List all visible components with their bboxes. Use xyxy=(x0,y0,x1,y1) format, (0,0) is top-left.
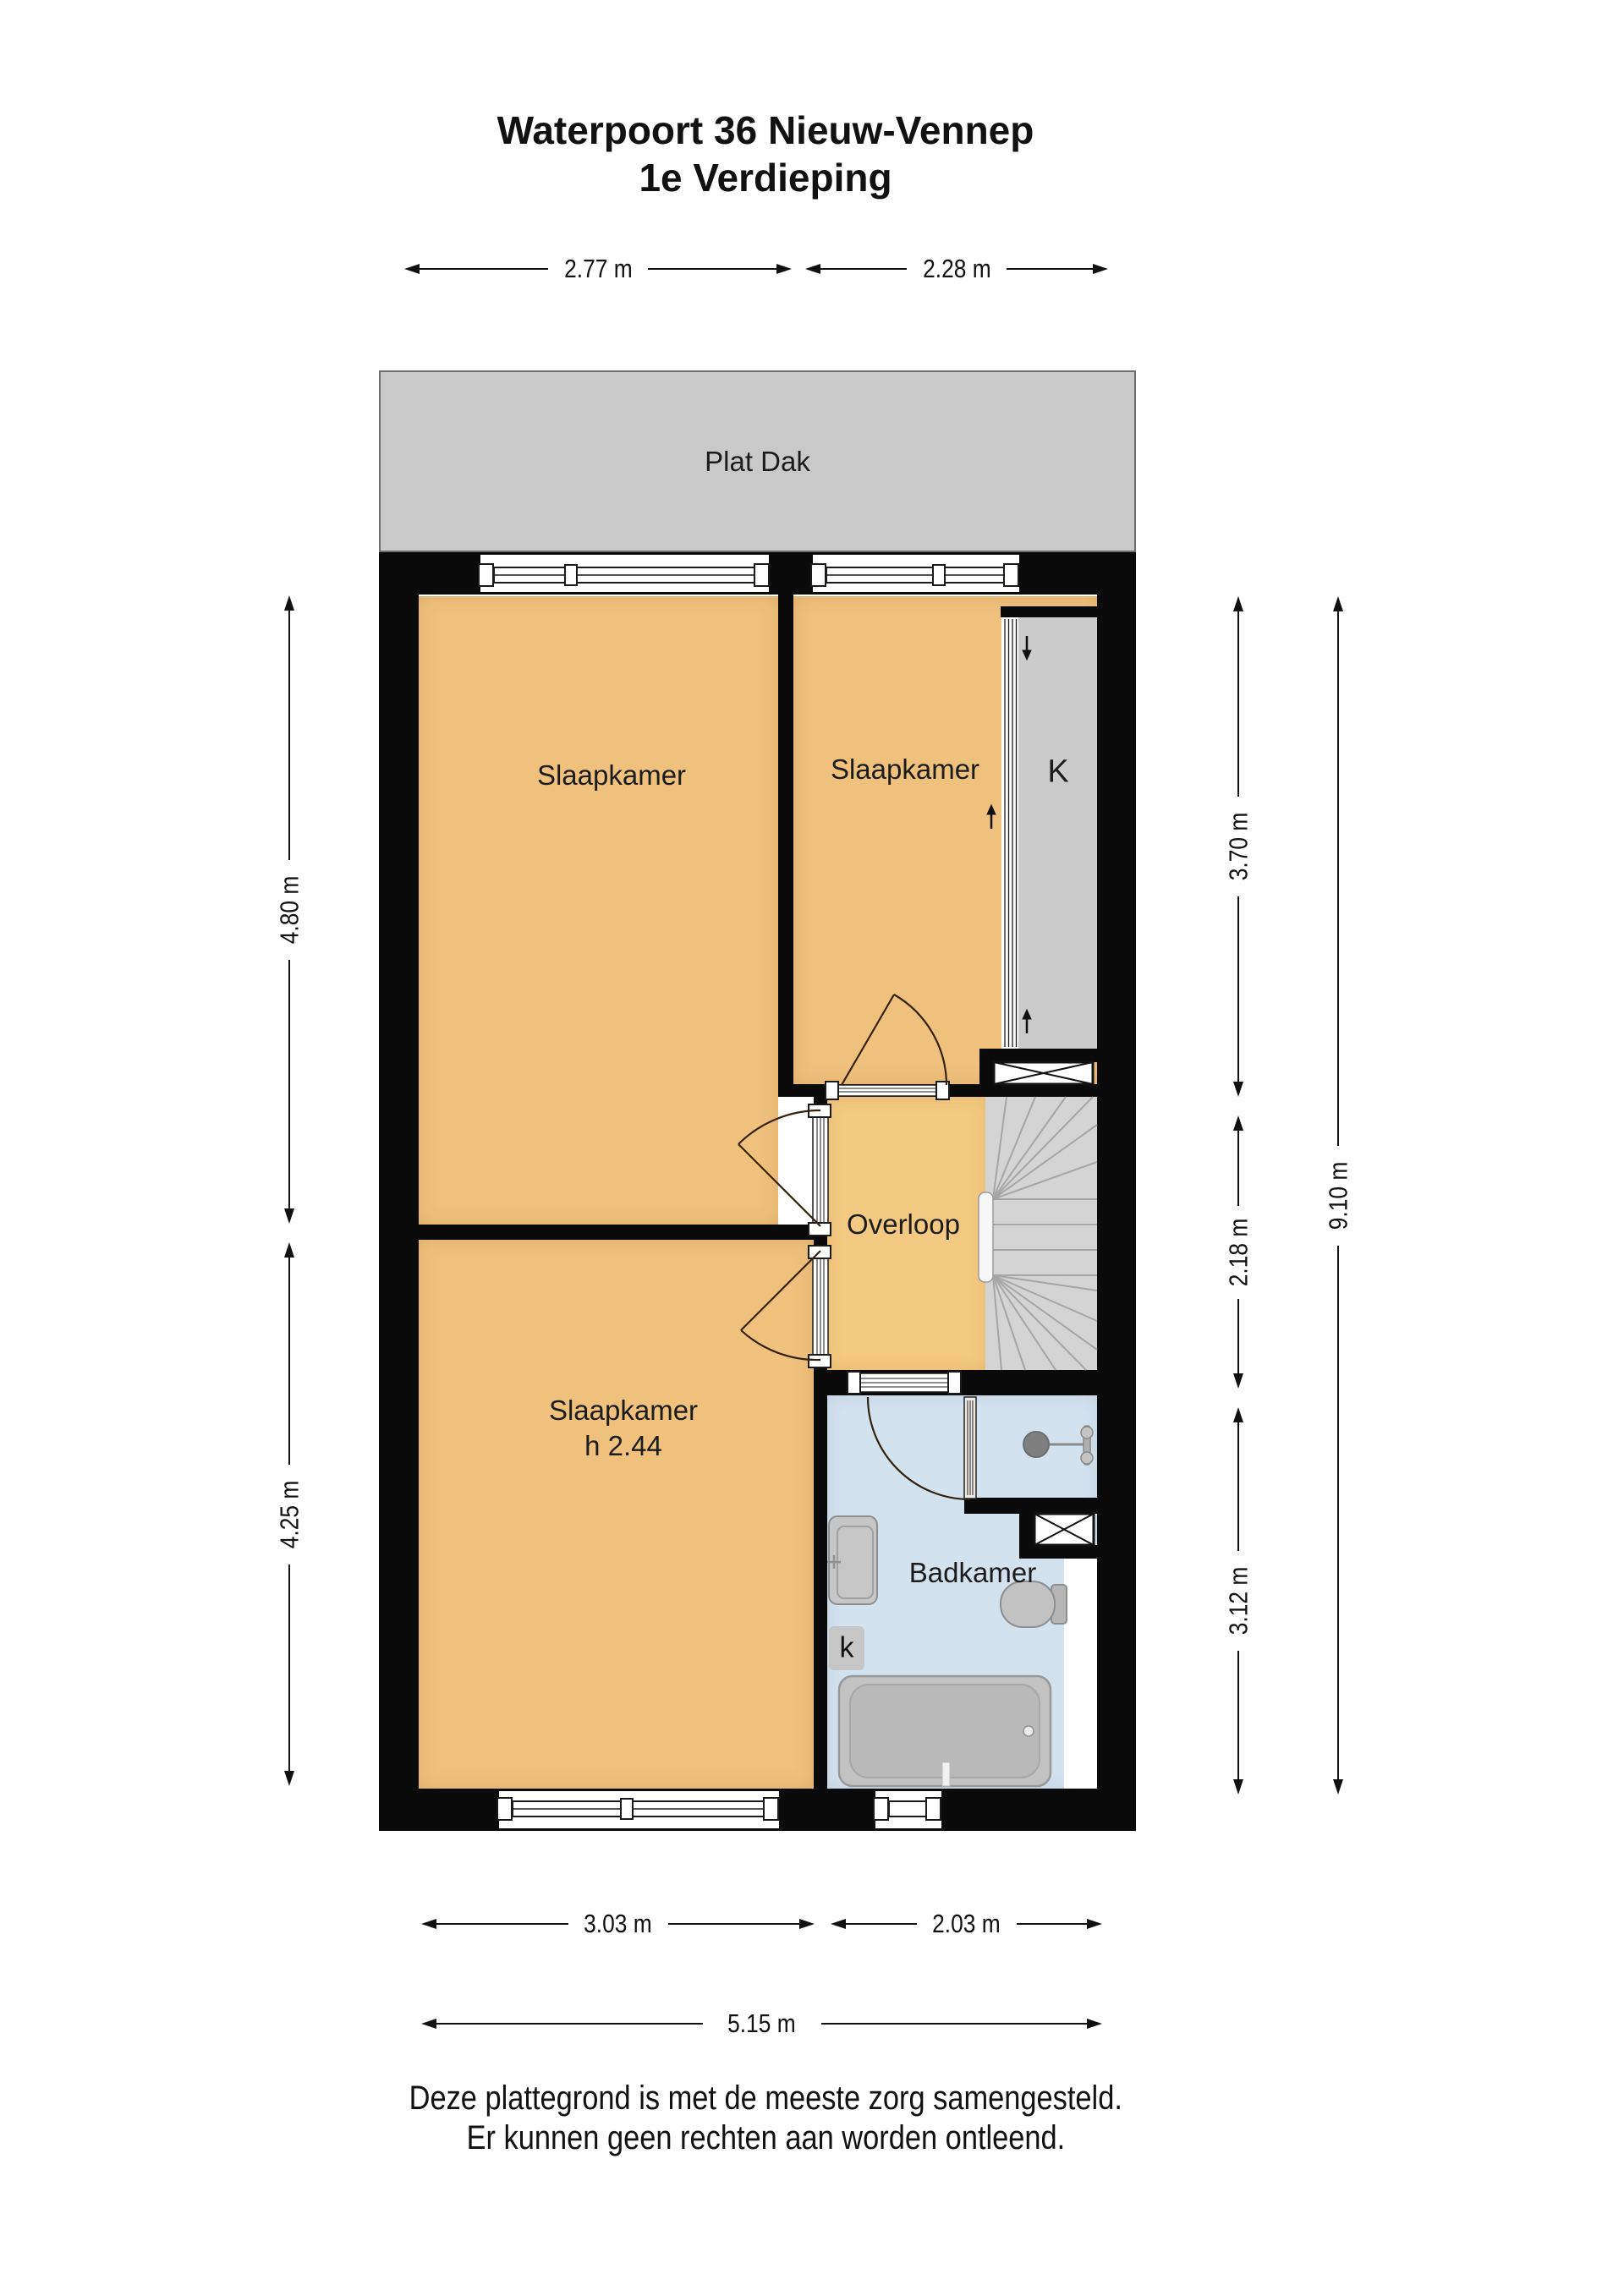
dimension-right-middle: 2.18 m xyxy=(1223,1115,1254,1389)
wall-closet-bottom xyxy=(979,1049,1097,1062)
dimension-bottom-right-value: 2.03 m xyxy=(932,1909,1001,1939)
dimension-top-right: 2.28 m xyxy=(805,254,1108,284)
wall-bath-shaft-bottom xyxy=(1019,1545,1136,1559)
dim-line xyxy=(1237,1131,1239,1206)
arrow-up-icon xyxy=(284,595,294,611)
dimension-bottom-right: 2.03 m xyxy=(831,1909,1102,1939)
dimension-top-left: 2.77 m xyxy=(404,254,792,284)
title-line-2: 1e Verdieping xyxy=(0,154,1531,201)
dim-line xyxy=(1237,1299,1239,1374)
bathroom-duct-strip xyxy=(1064,1559,1097,1789)
dim-line xyxy=(1017,1923,1088,1925)
wall-outer-bottom xyxy=(379,1789,1136,1831)
label-bedroom-bottom-height: h 2.44 xyxy=(584,1430,662,1462)
label-closet: K xyxy=(1047,754,1068,791)
dimension-right-total-value: 9.10 m xyxy=(1323,1161,1353,1230)
dimension-bottom-total: 5.15 m xyxy=(421,2008,1102,2039)
floorplan-page: Waterpoort 36 Nieuw-Vennep 1e Verdieping… xyxy=(0,0,1624,2296)
dim-line xyxy=(846,1923,917,1925)
dim-line xyxy=(668,1923,800,1925)
dimension-left-upper-value: 4.80 m xyxy=(274,875,304,944)
dimension-bottom-left-value: 3.03 m xyxy=(584,1909,652,1939)
arrow-left-icon xyxy=(421,1919,436,1929)
dimension-right-total: 9.10 m xyxy=(1323,596,1353,1795)
wall-closet-top xyxy=(1001,606,1097,617)
dim-line xyxy=(436,2023,703,2025)
dim-line xyxy=(648,268,776,270)
arrow-up-icon xyxy=(284,1242,294,1258)
arrow-left-icon xyxy=(805,264,820,274)
arrow-right-icon xyxy=(776,264,792,274)
disclaimer-line-1: Deze plattegrond is met de meeste zorg s… xyxy=(409,2079,1122,2118)
dim-line xyxy=(1337,611,1339,1146)
arrow-down-icon xyxy=(1333,1779,1343,1795)
label-bedroom-top-left: Slaapkamer xyxy=(537,759,686,792)
arrow-down-icon xyxy=(1233,1082,1243,1097)
arrow-up-icon xyxy=(1233,596,1243,611)
arrow-up-icon xyxy=(1333,596,1343,611)
room-bathroom xyxy=(827,1395,1097,1789)
bathroom-cabinet: k xyxy=(829,1626,864,1670)
arrow-right-icon xyxy=(1087,2019,1102,2029)
dimension-left-upper: 4.80 m xyxy=(274,595,304,1224)
dimension-right-upper: 3.70 m xyxy=(1223,596,1254,1097)
wall-outer-top xyxy=(379,552,1136,595)
arrow-down-icon xyxy=(284,1208,294,1224)
wall-landing-top xyxy=(778,1084,1097,1097)
dimension-left-lower-value: 4.25 m xyxy=(274,1480,304,1548)
dim-line xyxy=(820,268,907,270)
arrow-down-icon xyxy=(1233,1779,1243,1795)
dimension-top-left-value: 2.77 m xyxy=(564,254,633,284)
wall-shower-partition xyxy=(964,1498,1136,1514)
wall-landing-left xyxy=(814,1097,827,1789)
arrow-up-icon xyxy=(1233,1115,1243,1131)
dim-line xyxy=(288,611,290,860)
wall-bathroom-top xyxy=(814,1370,1136,1395)
dim-line xyxy=(821,2023,1088,2025)
staircase-area xyxy=(985,1097,1097,1370)
dim-line xyxy=(1237,611,1239,797)
dim-line xyxy=(436,1923,568,1925)
wall-bedrooms-divider-vertical xyxy=(778,595,793,1097)
dimension-right-lower: 3.12 m xyxy=(1223,1407,1254,1795)
plan-graphics xyxy=(0,0,1624,2296)
flat-roof-area: Plat Dak xyxy=(379,370,1136,552)
dim-line xyxy=(1337,1246,1339,1780)
wall-outer-left xyxy=(379,552,419,1831)
room-bedroom-bottom xyxy=(419,1240,814,1789)
dim-line xyxy=(1237,1422,1239,1551)
dim-line xyxy=(288,960,290,1209)
arrow-down-icon xyxy=(1233,1373,1243,1389)
label-landing: Overloop xyxy=(847,1208,960,1241)
closet-interior xyxy=(1017,617,1097,1049)
dim-line xyxy=(1007,268,1093,270)
label-bedroom-bottom: Slaapkamer xyxy=(549,1395,698,1427)
flat-roof-label: Plat Dak xyxy=(705,446,810,478)
arrow-down-icon xyxy=(284,1771,294,1786)
arrow-up-icon xyxy=(1233,1407,1243,1422)
wall-bedrooms-divider-horizontal xyxy=(419,1225,814,1240)
arrow-left-icon xyxy=(421,2019,436,2029)
wall-outer-right xyxy=(1097,552,1136,1831)
dim-line xyxy=(1237,896,1239,1082)
dimension-left-lower: 4.25 m xyxy=(274,1242,304,1786)
disclaimer-line-2: Er kunnen geen rechten aan worden ontlee… xyxy=(466,2118,1065,2158)
arrow-right-icon xyxy=(1093,264,1108,274)
dim-line xyxy=(288,1564,290,1772)
dimension-right-lower-value: 3.12 m xyxy=(1223,1567,1254,1636)
title-line-1: Waterpoort 36 Nieuw-Vennep xyxy=(0,107,1531,154)
wall-shaft-left xyxy=(979,1062,994,1097)
dimension-right-middle-value: 2.18 m xyxy=(1223,1218,1254,1286)
arrow-left-icon xyxy=(831,1919,846,1929)
dimension-right-upper-value: 3.70 m xyxy=(1223,813,1254,881)
dim-line xyxy=(1237,1651,1239,1779)
label-cabinet: k xyxy=(840,1632,854,1665)
label-bedroom-top-right: Slaapkamer xyxy=(831,753,979,786)
page-title: Waterpoort 36 Nieuw-Vennep 1e Verdieping xyxy=(0,107,1531,201)
arrow-left-icon xyxy=(404,264,420,274)
label-bathroom: Badkamer xyxy=(909,1557,1036,1589)
disclaimer: Deze plattegrond is met de meeste zorg s… xyxy=(0,2079,1531,2158)
arrow-right-icon xyxy=(1087,1919,1102,1929)
dimension-top-right-value: 2.28 m xyxy=(923,254,991,284)
room-bedroom-top-left xyxy=(419,596,778,1225)
dim-line xyxy=(288,1258,290,1465)
dimension-bottom-left: 3.03 m xyxy=(421,1909,815,1939)
dimension-bottom-total-value: 5.15 m xyxy=(727,2008,796,2039)
dim-line xyxy=(420,268,548,270)
arrow-right-icon xyxy=(799,1919,815,1929)
